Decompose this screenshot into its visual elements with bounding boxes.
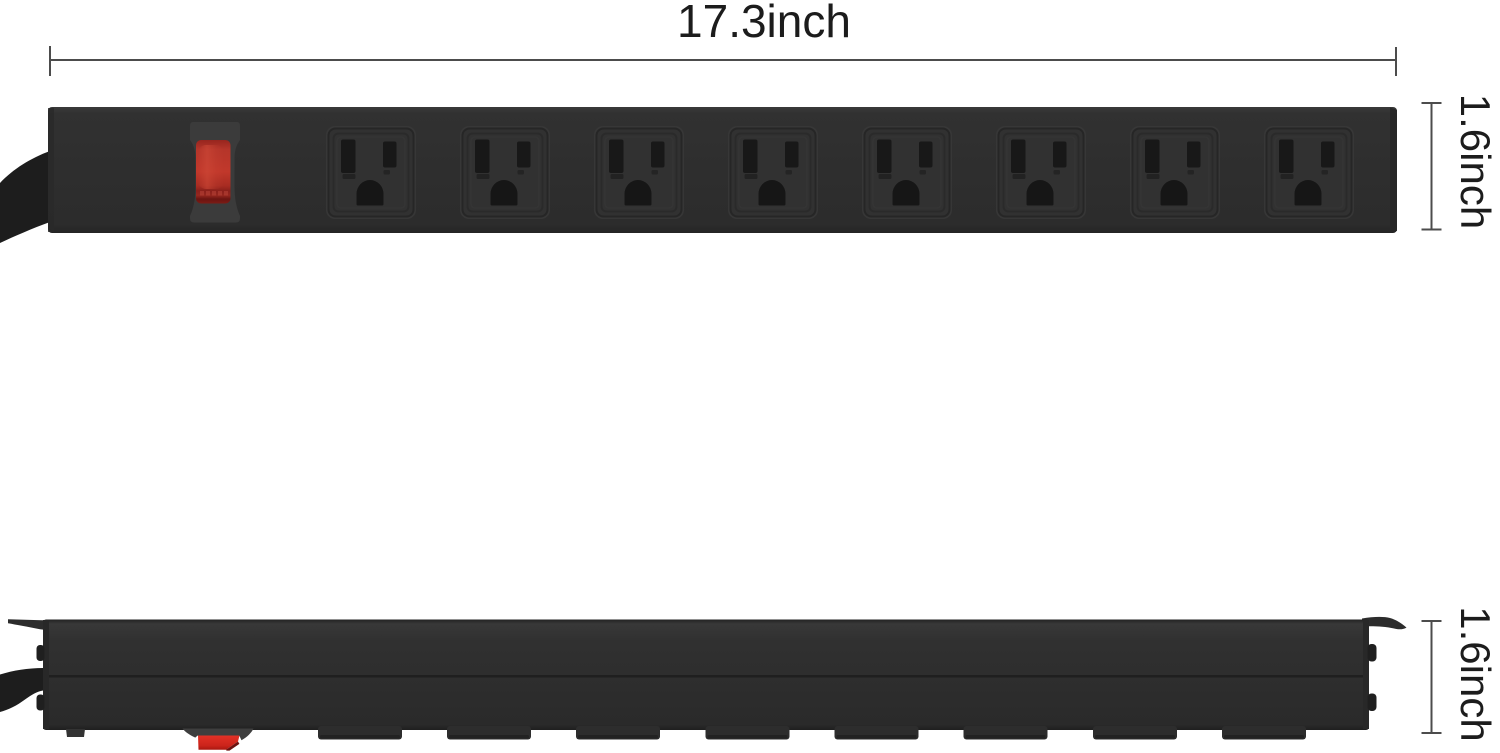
svg-text:1.6inch: 1.6inch xyxy=(1452,94,1499,229)
svg-text:1.6inch: 1.6inch xyxy=(1452,606,1499,741)
svg-text:17.3inch: 17.3inch xyxy=(677,0,851,47)
